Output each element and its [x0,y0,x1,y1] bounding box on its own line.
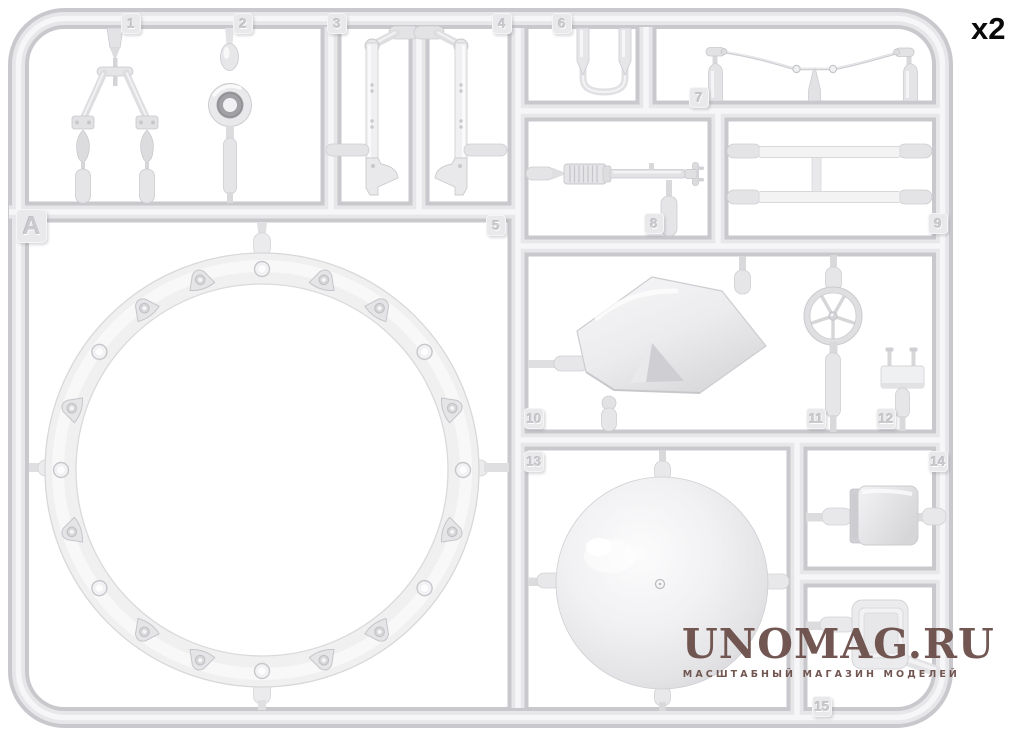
part-2-ring-hub [209,28,252,203]
part-6-u-bracket [577,28,631,92]
part-7-tow-cable [706,48,918,102]
part-tag-6: 6 [552,13,572,34]
part-tag-8: 8 [644,213,664,234]
sprue-letter-tag: A [16,209,47,243]
part-tag-7: 7 [689,87,709,108]
watermark-subtitle: МАСШТАБНЫЙ МАГАЗИН МОДЕЛЕЙ [682,669,960,680]
part-1-tow-coupling [72,28,158,203]
part-tag-12: 12 [876,408,896,429]
part-tag-14: 14 [928,451,948,472]
part-tag-9: 9 [928,213,948,234]
part-tag-11: 11 [806,408,826,429]
part-tag-10: 10 [524,408,544,429]
part-tag-2: 2 [233,13,253,34]
part-14-seat-box [806,486,946,545]
part-tag-15: 15 [812,696,832,717]
part-tag-5: 5 [486,215,506,236]
part-5-turret-ring [29,223,509,710]
part-tag-3: 3 [327,13,347,34]
part-tag-13: 13 [524,451,544,472]
part-9-frame-rails [727,144,932,204]
part-11-handwheel [804,255,862,432]
watermark: UNOMAG.RU МАСШТАБНЫЙ МАГАЗИН МОДЕЛЕЙ [682,622,960,680]
sprue-sheet-page: A 1 2 3 4 5 6 7 8 9 10 11 12 13 14 15 x2… [0,0,1020,735]
watermark-title: UNOMAG.RU [682,622,960,667]
part-tag-4: 4 [492,13,512,34]
part-10-gun-shield [528,256,766,431]
part-8-machine-gun [526,163,704,237]
quantity-label: x2 [971,11,1005,47]
part-tag-1: 1 [121,13,141,34]
